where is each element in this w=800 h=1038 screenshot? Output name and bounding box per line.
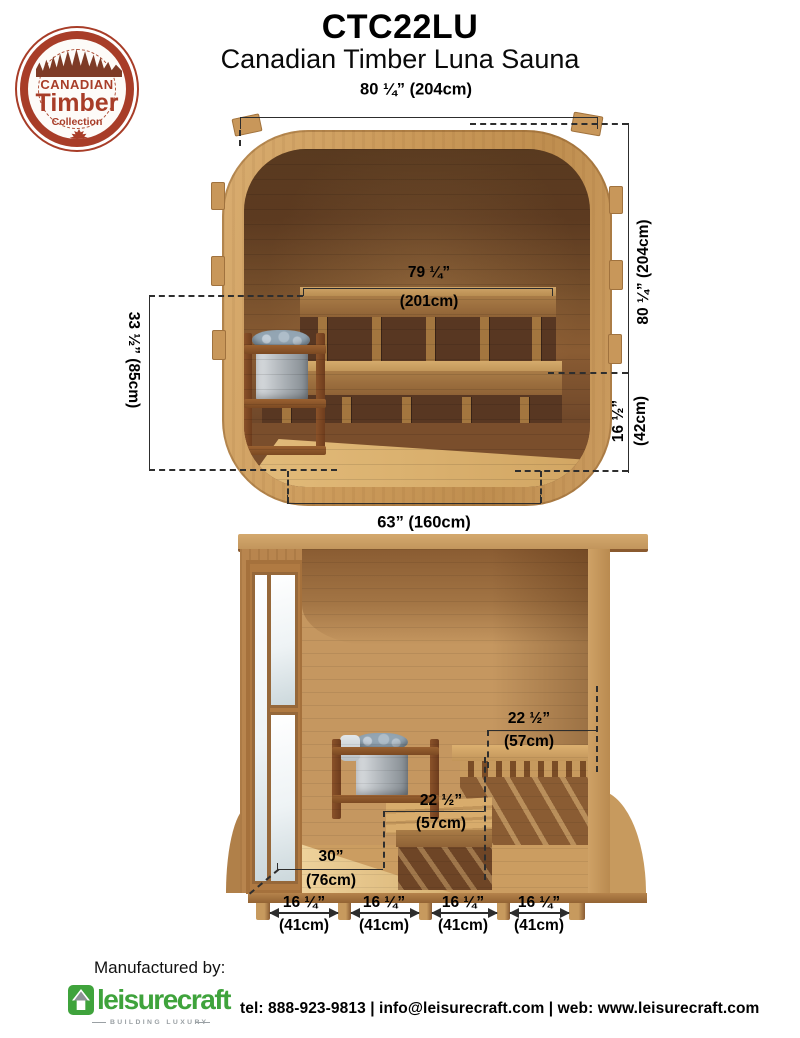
dim-upper-bench-height: 33 ½” (85cm)	[124, 312, 142, 409]
dim-joist-spacing-cm: (41cm)	[359, 917, 409, 935]
dim-joist-line	[432, 912, 497, 914]
log-end-tab	[609, 260, 623, 290]
log-end-tab	[609, 186, 623, 214]
log-end-tab	[211, 182, 225, 210]
dim-lower-bench-depth-cm: (57cm)	[416, 815, 466, 833]
dim-line	[149, 296, 150, 471]
manufactured-by-label: Manufactured by:	[94, 958, 225, 978]
bench-post	[462, 397, 471, 455]
dim-joist-spacing-in: 16 ¼”	[363, 894, 405, 912]
lower-bench-front	[262, 371, 562, 395]
heater-stones	[354, 733, 408, 751]
heater-towel	[340, 735, 360, 761]
heater-cage-rail	[244, 446, 326, 455]
dim-tick	[540, 495, 541, 503]
lower-bench-shadow-slats	[398, 846, 492, 890]
dim-bench-height-in: 16 ½”	[610, 400, 628, 442]
dim-overall-width: 80 ¼” (204cm)	[360, 81, 472, 100]
heater-cage-post	[332, 739, 341, 819]
contact-info: tel: 888-923-9813 | info@leisurecraft.co…	[240, 1000, 759, 1018]
backrest-gap	[300, 315, 556, 367]
dim-joist-line	[270, 912, 338, 914]
dim-joist-line	[351, 912, 419, 914]
dim-joist-spacing-cm: (41cm)	[279, 917, 329, 935]
bench-post	[318, 317, 327, 367]
dim-joist-line	[510, 912, 569, 914]
dim-dash	[149, 295, 303, 297]
page-title: CTC22LU	[0, 8, 800, 47]
dim-tick	[240, 117, 241, 129]
log-end-tab	[211, 256, 225, 286]
front-sauna-interior	[244, 149, 590, 487]
dim-floor-depth-cm: (76cm)	[306, 872, 356, 890]
tagline-dash	[196, 1022, 210, 1023]
dim-dash	[487, 730, 489, 768]
dim-joist-spacing-in: 16 ¼”	[283, 894, 325, 912]
bench-post	[342, 397, 351, 455]
heater-cage-post	[316, 333, 325, 455]
door-glass-lower	[268, 712, 298, 884]
maple-leaf-icon	[68, 129, 90, 147]
front-floor-highlight	[244, 427, 590, 487]
dim-tick	[303, 288, 304, 296]
bench-post	[426, 317, 435, 367]
dim-tick	[287, 495, 288, 503]
log-end-tab	[608, 334, 622, 364]
heater-cage-rail	[244, 345, 326, 354]
dim-bench-height-cm: (42cm)	[632, 396, 650, 446]
side-right-wall	[588, 549, 610, 893]
dim-joist-spacing-cm: (41cm)	[438, 917, 488, 935]
leisurecraft-logo-icon	[68, 985, 94, 1015]
bench-post	[480, 317, 489, 367]
dim-floor-depth-in: 30”	[319, 848, 344, 866]
upper-bench-shadow-slats	[460, 775, 588, 845]
lower-bench-top	[262, 361, 562, 371]
side-ceiling	[302, 549, 588, 645]
log-end-tab	[212, 330, 226, 360]
heater-body	[256, 345, 308, 403]
dim-base-width: 63” (160cm)	[377, 514, 471, 533]
dim-tick	[552, 288, 553, 296]
dim-upper-bench-depth-cm: (57cm)	[504, 733, 554, 751]
dim-dash	[149, 469, 337, 471]
floor-joist	[256, 903, 270, 920]
dim-joist-spacing-in: 16 ¼”	[442, 894, 484, 912]
badge-text-timber: Timber	[28, 89, 126, 118]
leisurecraft-tagline: BUILDING LUXURY	[110, 1019, 208, 1026]
dim-line	[277, 869, 383, 870]
bench-post	[532, 317, 541, 367]
dim-lower-bench-depth-in: 22 ½”	[420, 792, 462, 810]
dim-interior-width-in: 79 ¼”	[408, 264, 450, 282]
dim-dash	[484, 757, 486, 880]
dim-dash	[596, 686, 598, 772]
front-floor	[244, 423, 590, 487]
dim-dash	[239, 130, 241, 146]
floor-joist	[569, 903, 585, 920]
dim-joist-spacing-cm: (41cm)	[514, 917, 564, 935]
dim-line	[303, 288, 553, 289]
bench-post	[402, 397, 411, 455]
heater-body	[356, 747, 408, 799]
spec-sheet-page: CTC22LU Canadian Timber Luna Sauna CANAD…	[0, 0, 800, 1038]
dim-line	[383, 811, 484, 812]
tagline-dash	[92, 1022, 106, 1023]
door-glass-upper	[268, 572, 298, 708]
dim-dash	[383, 811, 385, 868]
heater-cage-rail	[244, 399, 326, 408]
upper-bench-fence	[460, 761, 588, 777]
bench-post	[282, 397, 291, 455]
dim-upper-bench-depth-in: 22 ½”	[508, 710, 550, 728]
dim-dash	[470, 123, 628, 125]
badge-text-collection: Collection	[28, 116, 126, 128]
canadian-timber-badge: CANADIAN Timber Collection	[15, 26, 139, 152]
dim-interior-width-cm: (201cm)	[400, 293, 459, 311]
dim-line	[287, 503, 541, 504]
dim-joist-spacing-in: 16 ¼”	[518, 894, 560, 912]
heater-stones	[252, 330, 310, 350]
bench-post	[372, 317, 381, 367]
badge-ring: CANADIAN Timber Collection	[20, 31, 134, 147]
dim-dash	[515, 470, 628, 472]
underbench-gap	[262, 395, 562, 457]
heater-cage-post	[244, 333, 252, 455]
bench-post	[520, 397, 529, 455]
dim-line	[240, 117, 598, 118]
dim-dash	[548, 372, 628, 374]
dim-line	[487, 730, 596, 731]
leisurecraft-wordmark: leisurecraft	[97, 984, 230, 1016]
dim-overall-height: 80 ¼” (204cm)	[635, 219, 653, 324]
dim-line	[628, 123, 629, 473]
heater-cage-rail	[332, 747, 439, 755]
